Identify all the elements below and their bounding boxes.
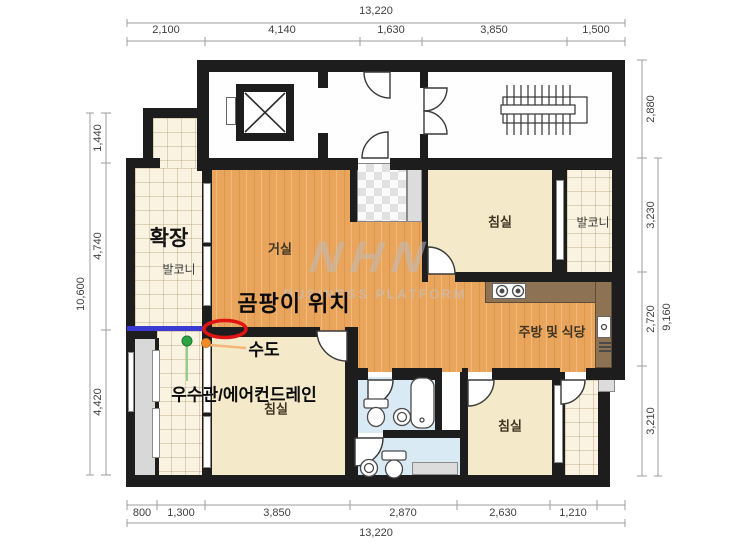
wall xyxy=(209,158,358,170)
vent-grille xyxy=(599,342,611,352)
wall xyxy=(197,60,625,72)
annotation-rain-pipe-ac-drain: 우수관/에어컨드레인 xyxy=(171,381,316,406)
wall xyxy=(318,133,328,170)
wall xyxy=(460,372,468,475)
dim-right-seg: 3,230 xyxy=(645,201,657,229)
dim-top-total: 13,220 xyxy=(359,5,393,17)
room-label-expansion: 확장 xyxy=(150,222,189,252)
dim-bottom-seg: 800 xyxy=(133,507,151,519)
room-label-kitchen: 주방 및 식당 xyxy=(518,322,585,341)
elevator-bracket xyxy=(226,97,236,125)
balcony-bottom-right-floor xyxy=(565,380,598,475)
window xyxy=(203,246,211,306)
watermark-logo: NHN xyxy=(303,233,442,283)
wall xyxy=(350,158,357,222)
fridge xyxy=(597,316,611,338)
elevator-car xyxy=(244,92,286,133)
corridor-floor xyxy=(442,372,462,438)
dim-left-seg: 4,420 xyxy=(92,388,104,416)
wall xyxy=(318,72,328,88)
dim-top-seg: 3,850 xyxy=(480,24,508,36)
room-label-balcony-right: 발코니 xyxy=(576,214,609,231)
window xyxy=(152,408,160,458)
wall xyxy=(455,272,612,282)
window xyxy=(203,416,211,468)
bathroom-upper-floor xyxy=(358,377,435,433)
wall xyxy=(586,368,625,380)
dim-left-seg: 1,440 xyxy=(92,124,104,152)
window xyxy=(556,180,564,260)
dim-bottom-seg: 1,300 xyxy=(167,507,195,519)
window xyxy=(152,350,160,402)
annotation-water-supply: 수도 xyxy=(248,336,279,361)
wall xyxy=(126,158,135,487)
dim-top-seg: 1,500 xyxy=(582,24,610,36)
wall xyxy=(492,368,560,380)
room-label-living: 거실 xyxy=(268,239,292,258)
dim-bottom-seg: 2,630 xyxy=(489,507,517,519)
dim-top-seg: 1,630 xyxy=(377,24,405,36)
room-label-bedroom-top-right: 침실 xyxy=(488,212,512,231)
dim-right-total: 9,160 xyxy=(661,303,673,331)
floor-plan-canvas: NHN BUSINESS PLATFORM xyxy=(0,0,750,549)
dim-bottom-seg: 3,850 xyxy=(263,507,291,519)
wall xyxy=(383,430,460,438)
wall xyxy=(420,134,428,158)
shoe-closet xyxy=(407,163,422,222)
dim-left-seg: 4,740 xyxy=(92,232,104,260)
dim-right-seg: 2,880 xyxy=(645,95,657,123)
dim-right-seg: 2,720 xyxy=(645,305,657,333)
wall xyxy=(345,430,355,438)
wall xyxy=(435,377,442,430)
annotation-mold-location: 곰팡이 위치 xyxy=(237,286,350,318)
stove xyxy=(492,283,526,299)
laundry-tiles xyxy=(412,462,458,475)
wall xyxy=(135,331,157,339)
wall xyxy=(345,327,358,487)
dim-top-seg: 4,140 xyxy=(268,24,296,36)
dim-bottom-seg: 1,210 xyxy=(559,507,587,519)
dim-left-total: 10,600 xyxy=(75,277,87,311)
window xyxy=(128,352,134,412)
room-label-bedroom-bottom-right: 침실 xyxy=(498,416,522,435)
window xyxy=(554,385,563,463)
dim-bottom-total: 13,220 xyxy=(359,527,393,539)
balcony-left-upper-floor xyxy=(153,118,202,170)
dim-right-seg: 3,210 xyxy=(645,407,657,435)
wall xyxy=(612,60,625,380)
room-label-balcony-left: 발코니 xyxy=(162,261,195,278)
window xyxy=(203,183,211,243)
dim-top-seg: 2,100 xyxy=(152,24,180,36)
wall xyxy=(126,475,610,487)
wall xyxy=(345,368,368,380)
wall xyxy=(420,72,428,88)
wall xyxy=(598,392,610,475)
entry-floor xyxy=(357,163,407,222)
dim-bottom-seg: 2,870 xyxy=(389,507,417,519)
